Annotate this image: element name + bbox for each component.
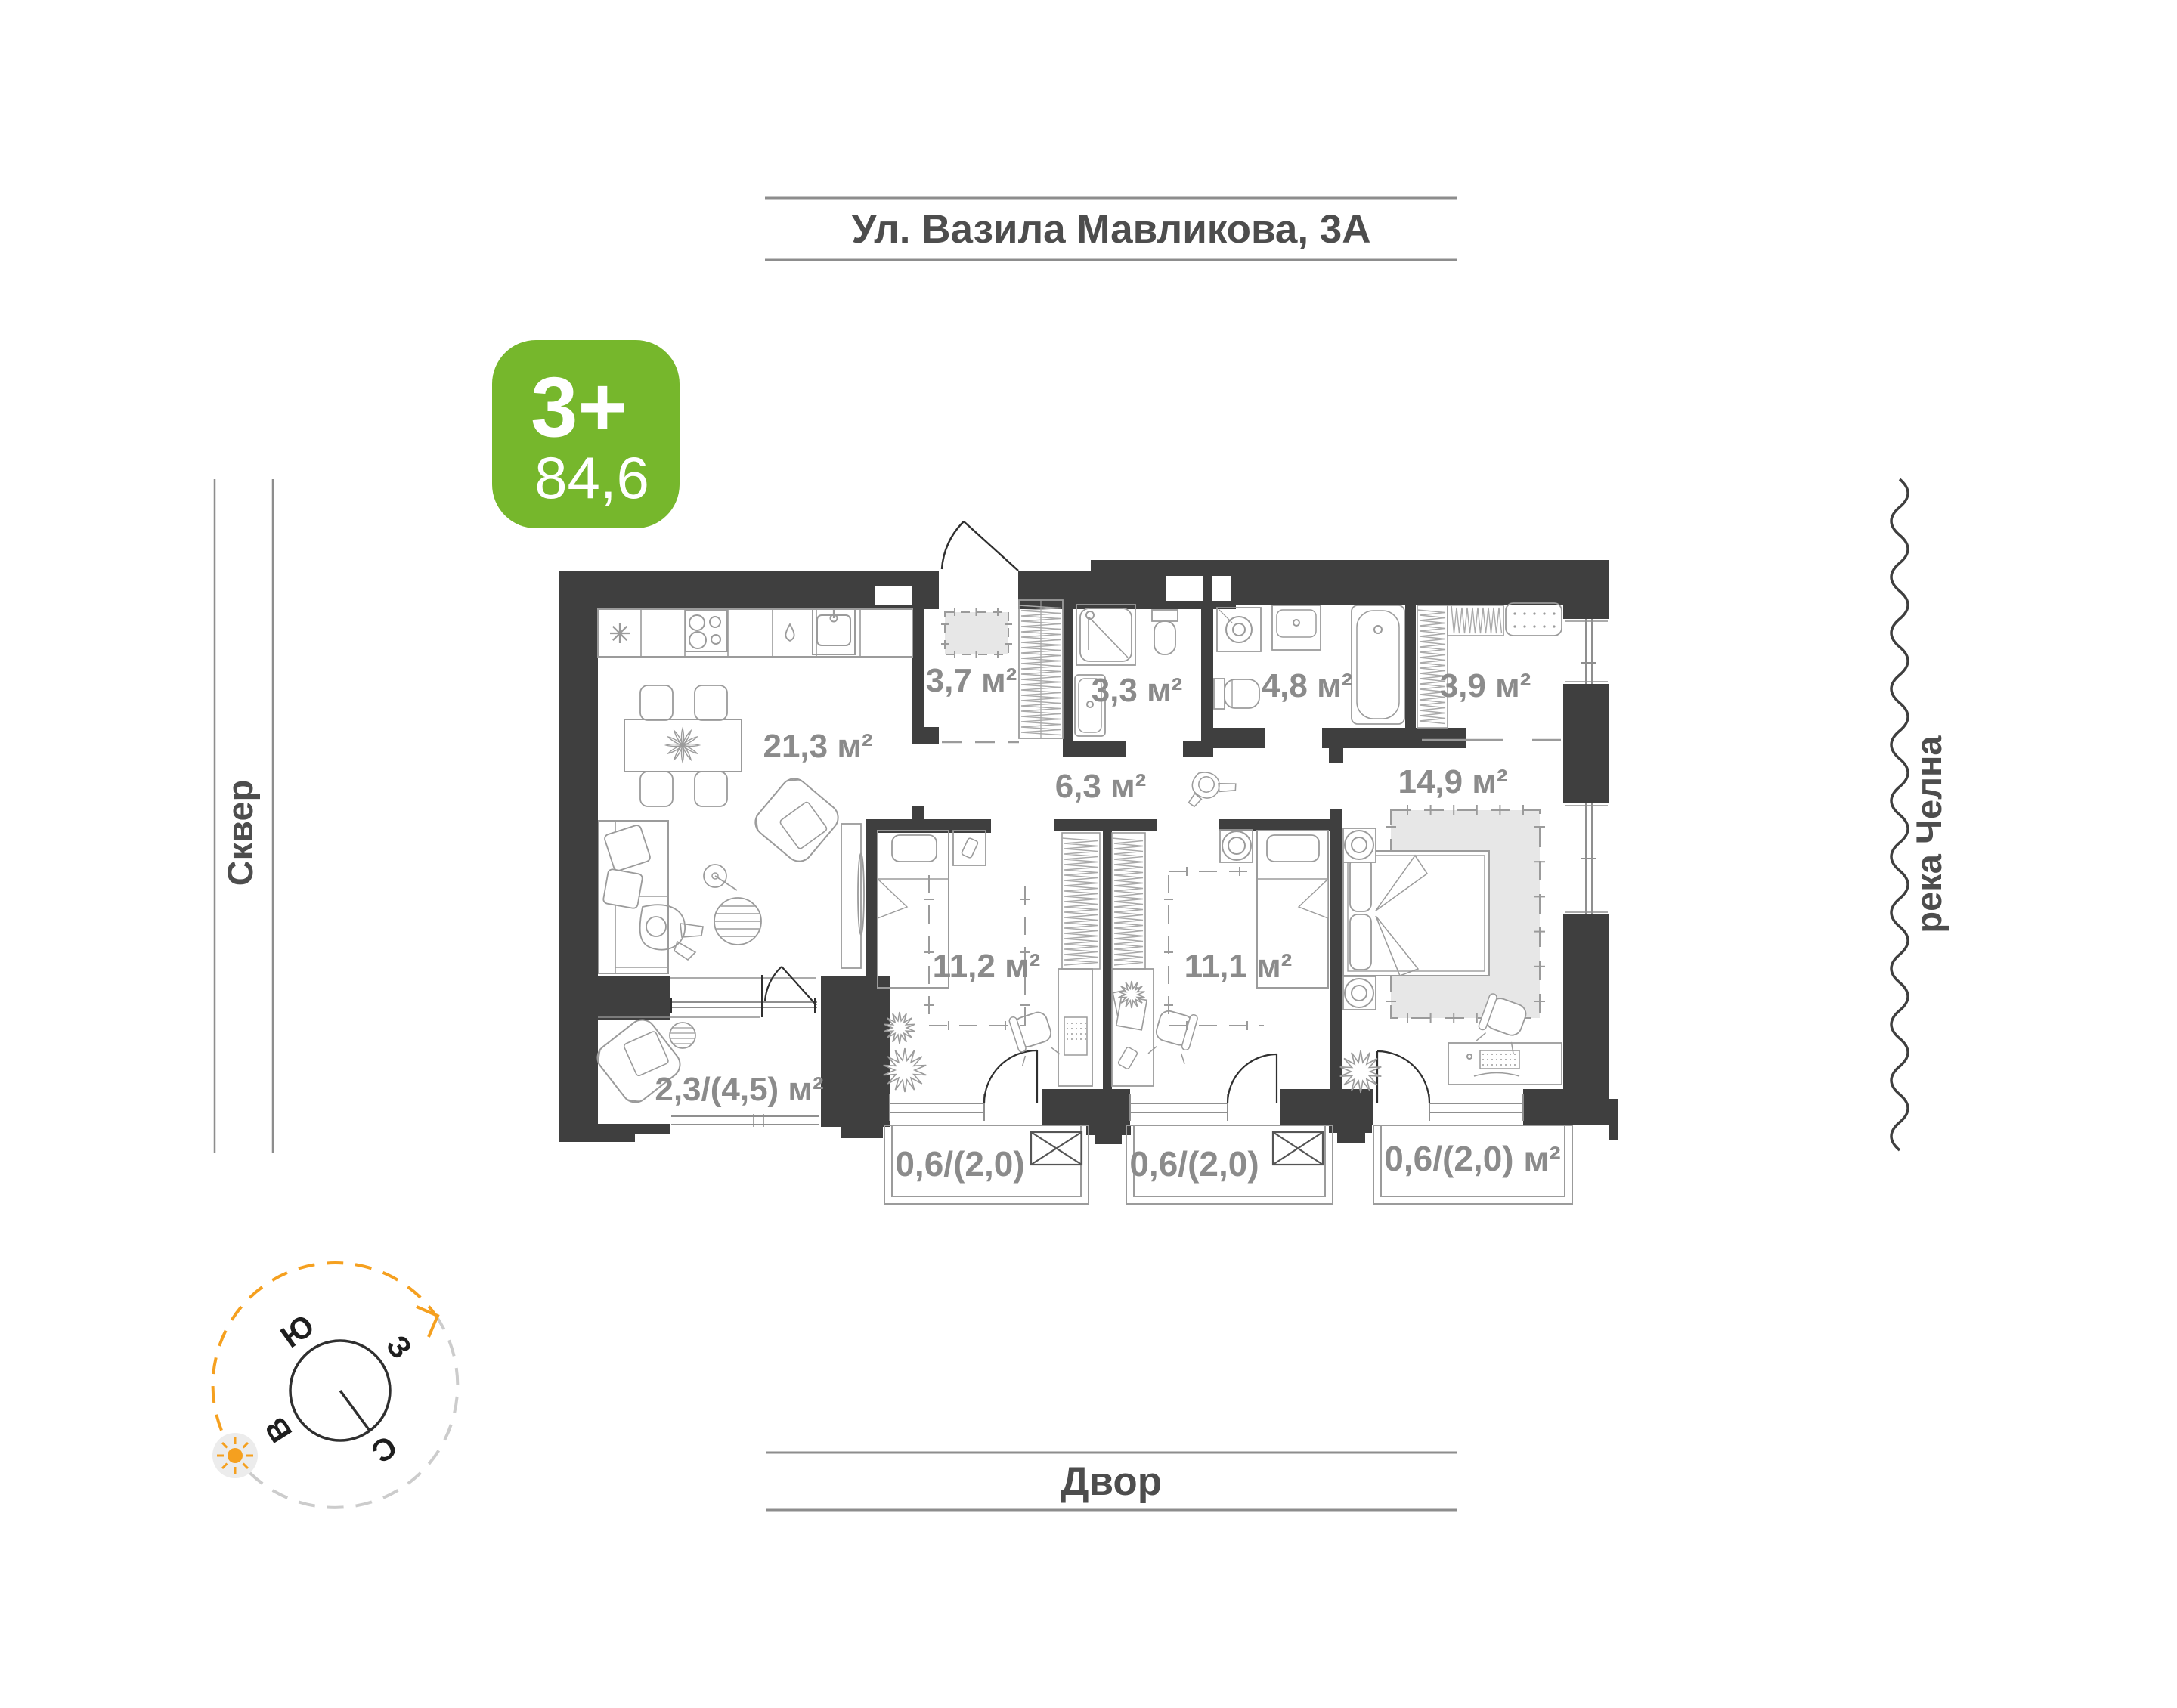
svg-text:3+: 3+ — [531, 360, 627, 454]
svg-text:21,3 м²: 21,3 м² — [763, 728, 872, 765]
svg-text:11,2 м²: 11,2 м² — [933, 948, 1041, 985]
svg-text:2,3/(4,5) м²: 2,3/(4,5) м² — [655, 1071, 823, 1108]
svg-text:84,6: 84,6 — [534, 444, 649, 511]
svg-text:река Челна: река Челна — [1909, 735, 1949, 933]
svg-text:6,3 м²: 6,3 м² — [1055, 768, 1147, 805]
svg-text:14,9 м²: 14,9 м² — [1398, 763, 1507, 800]
svg-text:Ул. Вазила Мавликова, 3А: Ул. Вазила Мавликова, 3А — [851, 207, 1370, 252]
svg-text:Двор: Двор — [1061, 1459, 1162, 1504]
svg-text:0,6/(2,0) м²: 0,6/(2,0) м² — [1384, 1139, 1560, 1178]
svg-text:3,3 м²: 3,3 м² — [1092, 672, 1183, 709]
svg-text:3,7 м²: 3,7 м² — [926, 662, 1017, 699]
svg-text:11,1 м²: 11,1 м² — [1184, 948, 1293, 985]
svg-text:0,6/(2,0): 0,6/(2,0) — [1129, 1144, 1259, 1184]
svg-text:0,6/(2,0): 0,6/(2,0) — [895, 1144, 1024, 1184]
svg-text:4,8 м²: 4,8 м² — [1262, 667, 1353, 704]
svg-text:3,9 м²: 3,9 м² — [1440, 667, 1531, 704]
svg-text:Сквер: Сквер — [220, 780, 260, 886]
